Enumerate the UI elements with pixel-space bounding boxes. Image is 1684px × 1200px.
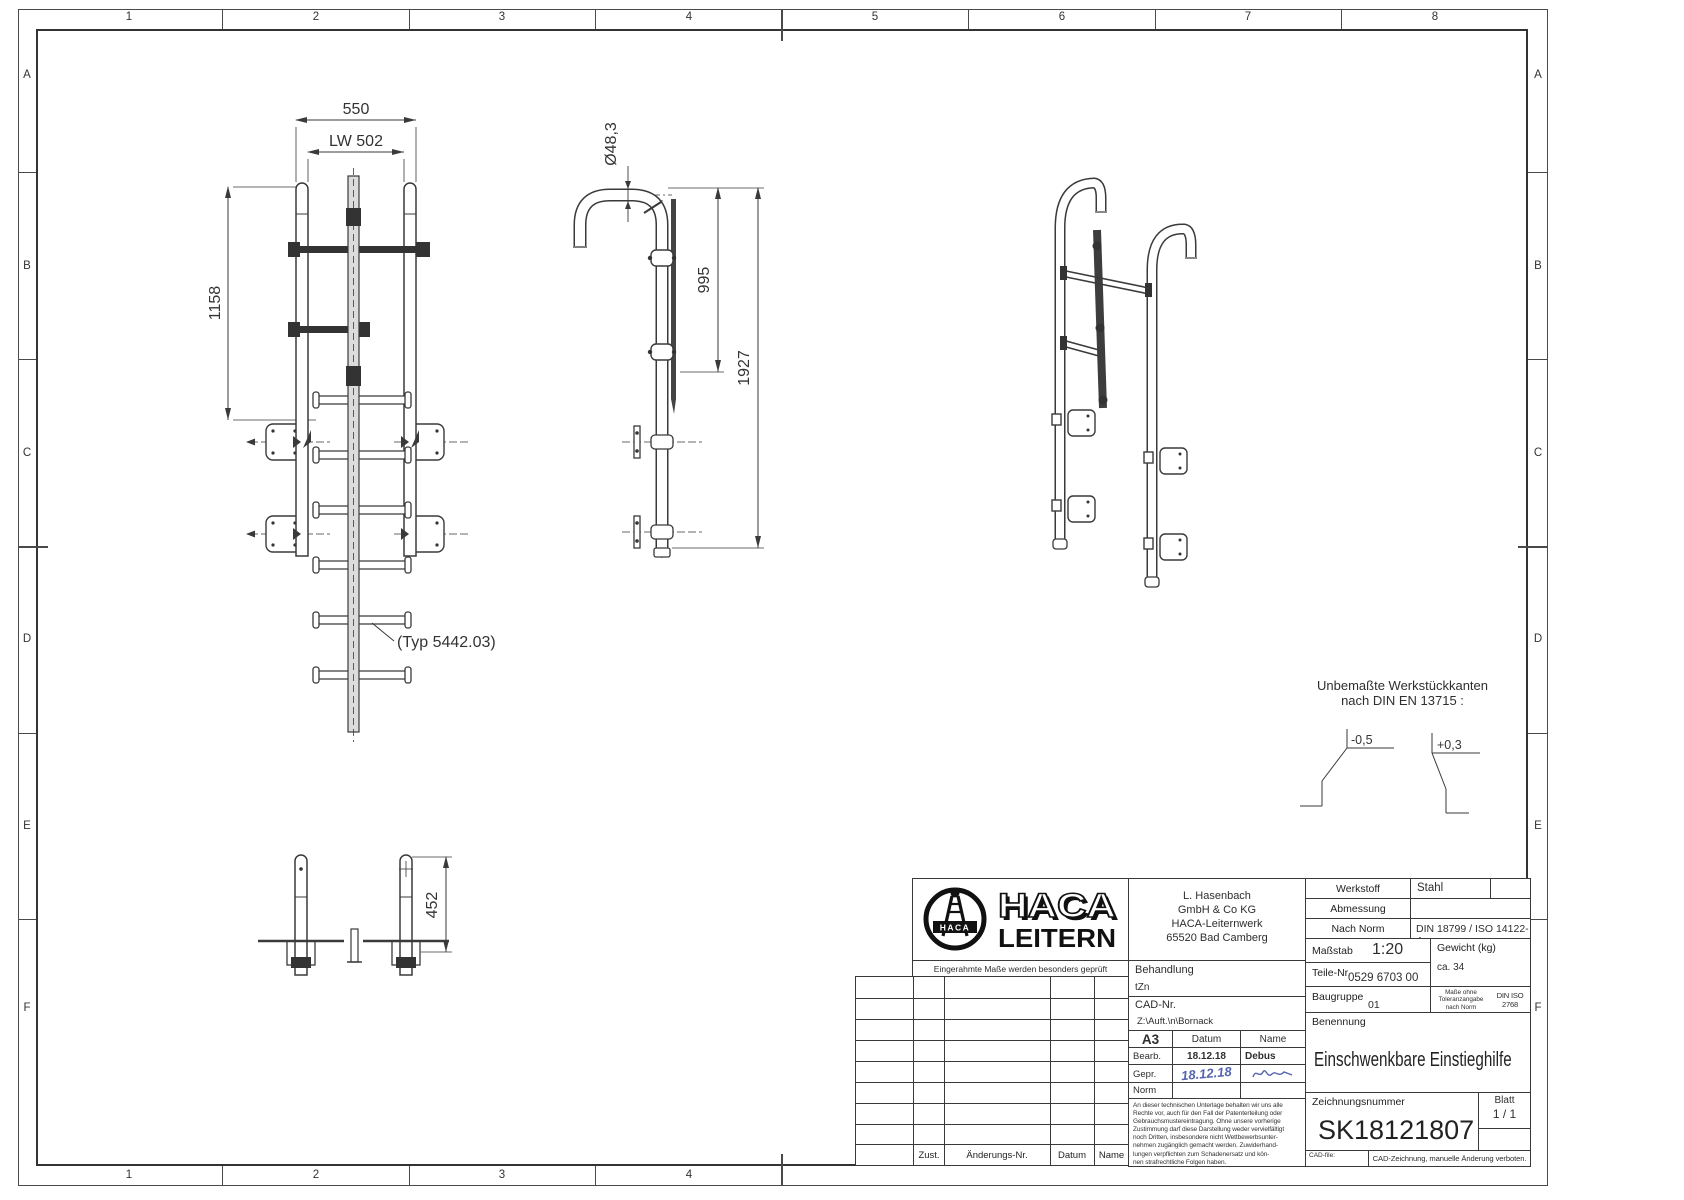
dimension-452: 452 [412, 857, 452, 952]
legal-line: nehmen zugänglich gemacht werden. Zuwide… [1133, 1142, 1303, 1150]
toleranz-note: Maße ohne Toleranzangabe nach Norm [1433, 989, 1489, 1011]
cad-note-cell: CAD-Zeichnung, manuelle Änderung verbote… [1368, 1150, 1531, 1167]
bearb-name: Debus [1245, 1051, 1276, 1062]
zeichnungsnummer-box: Zeichnungsnummer SK18121807 [1305, 1092, 1479, 1151]
address-line: L. Hasenbach [1129, 889, 1305, 903]
gewicht-value: ca. 34 [1437, 962, 1464, 973]
dim-1927-text: 1927 [736, 350, 753, 386]
norm-label: Norm [1133, 1085, 1156, 1096]
massstab-cell: Maßstab 1:20 [1305, 938, 1431, 963]
werkstoff-label: Werkstoff [1336, 883, 1380, 895]
logo-brand-top: HACA [998, 887, 1116, 925]
centre-rail-front [346, 168, 361, 742]
legal-line: Zustimmung darf diese Darstellung weder … [1133, 1126, 1303, 1134]
gepr-signature-scribble [1251, 1066, 1295, 1081]
benennung-value: Einschwenkbare Einstieghilfe [1314, 1049, 1512, 1072]
zeichnungsnummer-value: SK18121807 [1318, 1115, 1474, 1146]
werkstoff-extra-cell [1490, 878, 1531, 899]
abmessung-label: Abmessung [1330, 903, 1385, 915]
legal-text-box: An dieser technischen Unterlage behalten… [1128, 1098, 1306, 1167]
legal-line: Gebrauchsmustereintragung. Ohne unsere v… [1133, 1118, 1303, 1126]
dim-995-text: 995 [696, 267, 713, 294]
revision-col-name: Name [1094, 1150, 1129, 1161]
norm-datum-cell [1172, 1082, 1241, 1099]
benennung-box: Benennung Einschwenkbare Einstieghilfe [1305, 1012, 1531, 1093]
edge-symbols: -0,5 +0,3 [1300, 729, 1480, 813]
edge-plus-text: +0,3 [1437, 738, 1462, 752]
legal-line: noch Dritten, insbesondere nicht Wettbew… [1133, 1134, 1303, 1142]
legal-line: nen strafrechtliche Folgen haben. [1133, 1159, 1303, 1167]
teile-nr-label: Teile-Nr. [1312, 967, 1351, 979]
rail-edge [671, 199, 676, 399]
approval-datum-header: Datum [1172, 1030, 1241, 1048]
iso-rungs [1060, 266, 1152, 356]
cad-file-cell: CAD-file: [1305, 1150, 1369, 1167]
bottom-view: 452 [258, 855, 452, 975]
dim-452-text: 452 [424, 892, 441, 919]
benennung-label: Benennung [1312, 1016, 1366, 1028]
gepr-datum-handwritten: 18.12.18 [1181, 1064, 1233, 1083]
gepr-label: Gepr. [1133, 1069, 1156, 1080]
iso-rail [1097, 230, 1103, 408]
logo-box: HACA HACA HACA LEITERN [912, 878, 1129, 961]
dim-1158-text: 1158 [207, 286, 224, 321]
logo-brand-bottom: LEITERN [998, 923, 1116, 953]
name-header-text: Name [1260, 1034, 1287, 1045]
format-value: A3 [1142, 1032, 1159, 1047]
bearb-datum: 18.12.18 [1187, 1051, 1226, 1062]
cad-file-label: CAD-file: [1306, 1151, 1335, 1159]
type-label-text: (Typ 5442.03) [397, 634, 496, 651]
blatt-label: Blatt [1479, 1093, 1530, 1106]
norm-label-cell: Norm [1128, 1082, 1173, 1099]
framed-note: Eingerahmte Maße werden besonders geprüf… [912, 960, 1129, 977]
bearb-name-cell: Debus [1240, 1047, 1306, 1065]
edge-note-line2: nach DIN EN 13715 : [1295, 693, 1510, 708]
cad-note-text: CAD-Zeichnung, manuelle Änderung verbote… [1373, 1154, 1527, 1163]
nach-norm-value-cell: DIN 18799 / ISO 14122-4 [1410, 918, 1531, 939]
werkstoff-value-cell: Stahl [1410, 878, 1491, 899]
toleranz-note-line: Toleranzangabe [1433, 996, 1489, 1003]
baugruppe-value: 01 [1368, 999, 1380, 1011]
toleranz-note-line: Maße ohne [1433, 989, 1489, 996]
format-cell: A3 [1128, 1030, 1173, 1048]
edge-note-line1: Unbemaßte Werkstückkanten [1295, 678, 1510, 693]
front-view: 550 LW 502 1158 [207, 101, 496, 742]
dim-lw502-text: LW 502 [329, 133, 383, 150]
legal-line: An dieser technischen Unterlage behalten… [1133, 1102, 1303, 1110]
toleranz-norm: DIN ISO 2768 [1489, 991, 1531, 1009]
address-line: HACA-Leiternwerk [1129, 917, 1305, 931]
logo-emblem-circle [926, 890, 984, 948]
gewicht-label: Gewicht (kg) [1437, 942, 1496, 954]
behandlung-label: Behandlung [1135, 964, 1194, 976]
massstab-label: Maßstab [1312, 945, 1353, 957]
teile-nr-value: 0529 6703 00 [1348, 972, 1418, 984]
teile-nr-cell: Teile-Nr. 0529 6703 00 [1305, 962, 1431, 987]
gepr-datum-cell: 18.12.18 [1172, 1064, 1241, 1083]
hook-tube [580, 195, 662, 548]
behandlung-cell: Behandlung tZn [1128, 960, 1306, 997]
address-box: L. Hasenbach GmbH & Co KG HACA-Leiternwe… [1128, 878, 1306, 961]
edge-minus-text: -0,5 [1351, 733, 1373, 747]
legal-line: lungen verpflichten zum Schadenersatz un… [1133, 1151, 1303, 1159]
gepr-name-cell [1240, 1064, 1306, 1083]
abmessung-value-cell [1410, 898, 1531, 919]
gepr-label-cell: Gepr. [1128, 1064, 1173, 1083]
zeichnungsnummer-label: Zeichnungsnummer [1312, 1096, 1405, 1108]
cad-nr-cell: CAD-Nr. Z:\Auft.\n\Bornack [1128, 996, 1306, 1031]
behandlung-value: tZn [1135, 982, 1149, 993]
cad-nr-label: CAD-Nr. [1135, 999, 1176, 1011]
dimension-995: 995 [668, 188, 764, 372]
dimension-lw502: LW 502 [308, 133, 404, 182]
norm-name-cell [1240, 1082, 1306, 1099]
blatt-box: Blatt 1 / 1 [1478, 1092, 1531, 1129]
nach-norm-label-cell: Nach Norm [1305, 918, 1411, 939]
toleranz-note-line: nach Norm [1433, 1004, 1489, 1011]
dim-diameter-text: Ø48,3 [603, 122, 620, 166]
bearb-label-cell: Bearb. [1128, 1047, 1173, 1065]
bearb-label: Bearb. [1133, 1051, 1161, 1062]
type-label: (Typ 5442.03) [372, 623, 496, 651]
abmessung-label-cell: Abmessung [1305, 898, 1411, 919]
blatt-empty-box [1478, 1128, 1531, 1151]
blatt-value: 1 / 1 [1479, 1106, 1530, 1121]
approval-name-header: Name [1240, 1030, 1306, 1048]
iso-wall-plates [1052, 410, 1187, 560]
toleranz-cell: Maße ohne Toleranzangabe nach Norm DIN I… [1430, 986, 1531, 1013]
logo-emblem-text: HACA [940, 923, 971, 933]
side-view: Ø48,3 995 1927 [573, 122, 764, 560]
gewicht-cell: Gewicht (kg) ca. 34 [1430, 938, 1531, 987]
framed-note-text: Eingerahmte Maße werden besonders geprüf… [934, 964, 1107, 974]
drawing-sheet: 1 2 3 4 5 6 7 8 1 2 3 4 A B C D E F A B … [0, 0, 1684, 1200]
revision-table: Zust. Änderungs-Nr. Datum Name [855, 976, 1129, 1166]
baugruppe-label: Baugruppe [1312, 991, 1363, 1003]
baugruppe-cell: Baugruppe 01 [1305, 986, 1431, 1013]
dim-550-text: 550 [343, 101, 370, 118]
nach-norm-label: Nach Norm [1331, 923, 1384, 935]
massstab-value: 1:20 [1372, 941, 1403, 959]
datum-header-text: Datum [1192, 1034, 1221, 1045]
legal-line: Rechte vor, auch für den Fall der Patent… [1133, 1110, 1303, 1118]
dimension-diameter: Ø48,3 [603, 122, 631, 222]
haca-logo: HACA HACA HACA LEITERN [913, 879, 1128, 960]
bearb-datum-cell: 18.12.18 [1172, 1047, 1241, 1065]
werkstoff-label-cell: Werkstoff [1305, 878, 1411, 899]
revision-col-zust: Zust. [910, 1150, 948, 1161]
iso-right-stile [1152, 229, 1191, 578]
address-line: GmbH & Co KG [1129, 903, 1305, 917]
revision-col-aenderungsnr: Änderungs-Nr. [947, 1150, 1047, 1161]
cad-nr-value: Z:\Auft.\n\Bornack [1137, 1016, 1213, 1027]
isometric-view [1052, 183, 1197, 587]
werkstoff-value: Stahl [1417, 882, 1443, 894]
address-line: 65520 Bad Camberg [1129, 931, 1305, 945]
revision-col-datum: Datum [1051, 1150, 1093, 1161]
